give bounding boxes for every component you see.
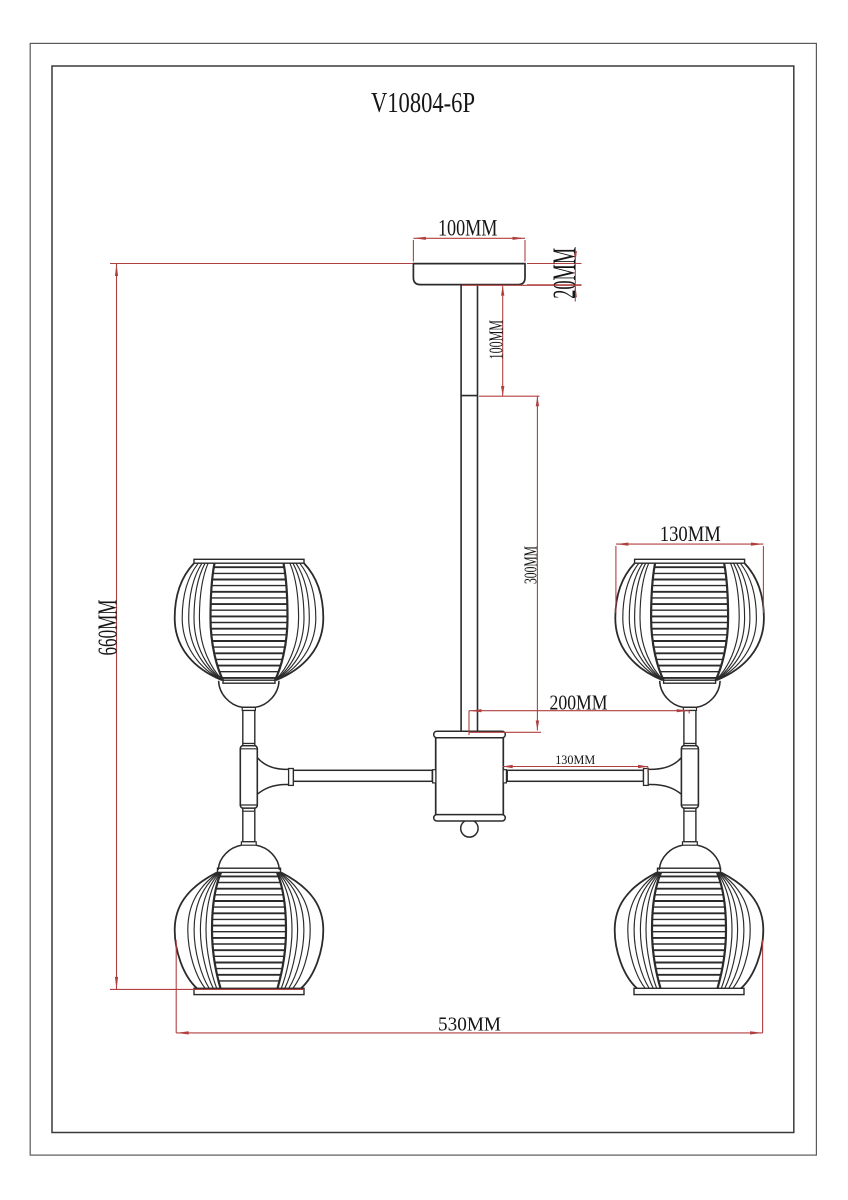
svg-text:300MM: 300MM: [520, 546, 540, 584]
svg-text:100MM: 100MM: [438, 215, 498, 241]
svg-text:130MM: 130MM: [555, 752, 595, 767]
svg-text:20MM: 20MM: [547, 248, 583, 299]
svg-text:200MM: 200MM: [550, 690, 608, 714]
svg-text:660MM: 660MM: [92, 600, 122, 656]
svg-text:V10804-6P: V10804-6P: [371, 88, 475, 119]
svg-text:530MM: 530MM: [438, 1014, 501, 1036]
svg-text:100MM: 100MM: [485, 320, 507, 359]
svg-text:130MM: 130MM: [660, 521, 721, 546]
